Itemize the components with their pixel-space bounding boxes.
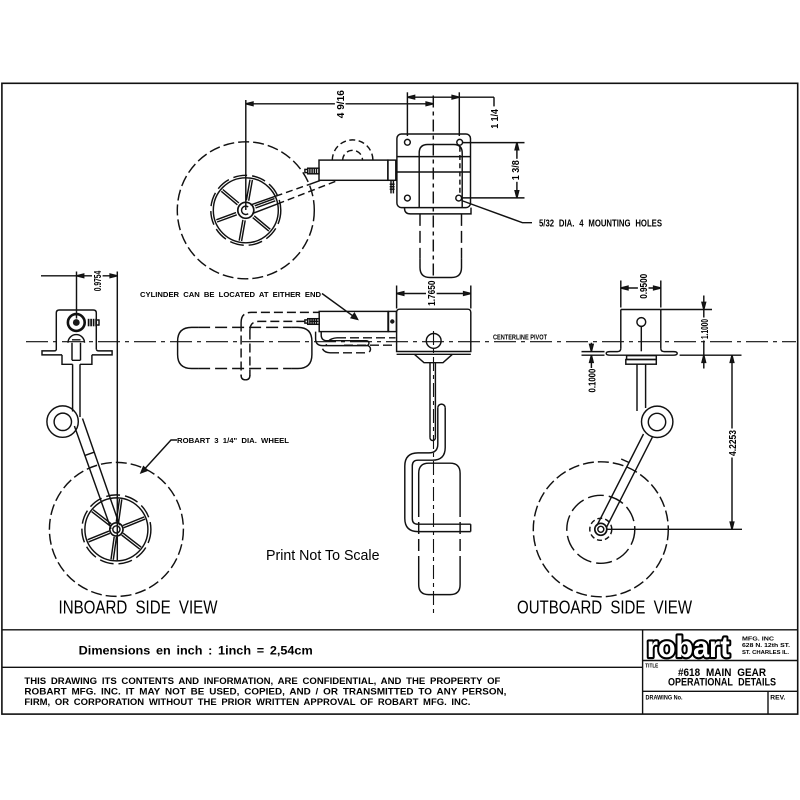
svg-text:ROBART MFG. INC. IT MAY NOT BE: ROBART MFG. INC. IT MAY NOT BE USED, COP…	[24, 687, 506, 697]
svg-text:Print Not To Scale: Print Not To Scale	[266, 548, 380, 564]
svg-text:4.2253: 4.2253	[727, 430, 739, 456]
svg-text:THIS DRAWING ITS CONTENTS AND: THIS DRAWING ITS CONTENTS AND INFORMATIO…	[24, 676, 500, 686]
svg-text:TITLE: TITLE	[645, 664, 659, 670]
svg-text:5/32 DIA. 4 MOUNTING HOLES: 5/32 DIA. 4 MOUNTING HOLES	[539, 218, 662, 229]
svg-text:OUTBOARD SIDE VIEW: OUTBOARD SIDE VIEW	[517, 597, 692, 618]
svg-text:REV.: REV.	[770, 696, 785, 702]
svg-text:628 N. 12th ST.: 628 N. 12th ST.	[742, 643, 791, 649]
svg-text:OPERATIONAL DETAILS: OPERATIONAL DETAILS	[668, 677, 776, 689]
svg-text:MFG. INC: MFG. INC	[742, 637, 774, 643]
svg-text:INBOARD SIDE VIEW: INBOARD SIDE VIEW	[59, 596, 218, 617]
svg-text:robart: robart	[647, 631, 730, 664]
svg-text:1.7650: 1.7650	[426, 280, 438, 305]
svg-text:0.1000: 0.1000	[586, 369, 598, 393]
svg-text:CENTERLINE PIVOT: CENTERLINE PIVOT	[493, 335, 548, 342]
svg-text:FIRM, OR CORPORATION WITHOUT T: FIRM, OR CORPORATION WITHOUT THE PRIOR W…	[24, 697, 470, 707]
svg-text:Dimensions en inch : 1inch = 2: Dimensions en inch : 1inch = 2,54cm	[79, 645, 313, 657]
svg-text:0.9500: 0.9500	[638, 274, 650, 299]
svg-text:DRAWING No.: DRAWING No.	[646, 696, 683, 702]
svg-text:CYLINDER CAN BE LOCATED AT EIT: CYLINDER CAN BE LOCATED AT EITHER END	[140, 290, 322, 299]
svg-text:1.1000: 1.1000	[699, 319, 711, 339]
svg-text:1 1/4: 1 1/4	[489, 109, 501, 129]
svg-text:4 9/16: 4 9/16	[335, 90, 347, 118]
svg-text:ST. CHARLES IL.: ST. CHARLES IL.	[742, 650, 790, 656]
svg-text:ROBART 3 1/4" DIA. WHEEL: ROBART 3 1/4" DIA. WHEEL	[177, 436, 289, 445]
svg-text:0.9754: 0.9754	[92, 271, 104, 292]
svg-text:1 3/8: 1 3/8	[510, 160, 522, 180]
